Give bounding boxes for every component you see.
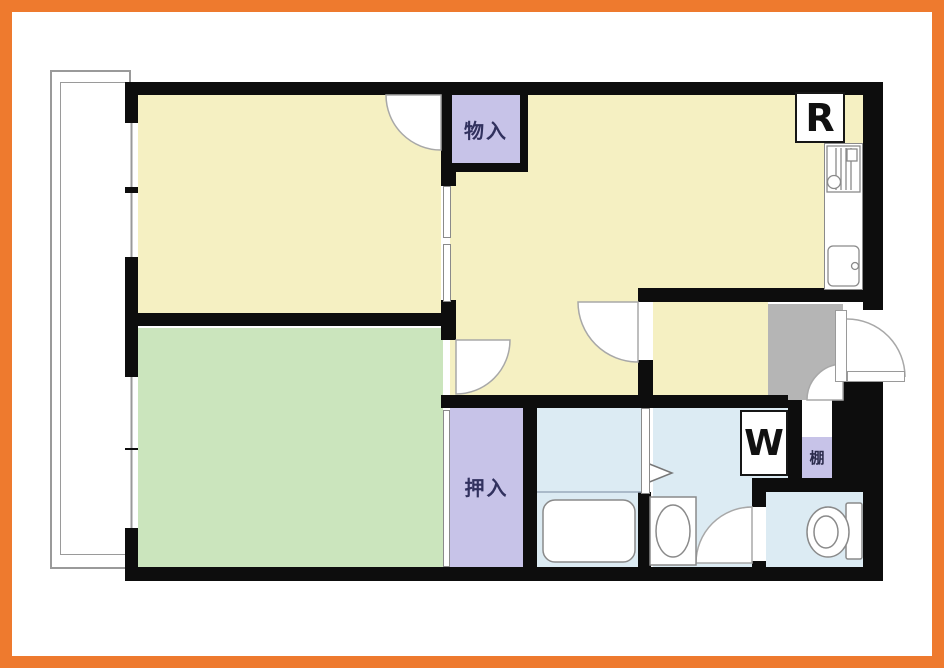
balcony-inner-rail	[60, 82, 129, 555]
wall-toilet-left-upper	[752, 492, 766, 507]
refrigerator-label: R	[805, 96, 834, 140]
washroom	[653, 408, 752, 567]
oshiire-text: 押入	[465, 472, 509, 501]
washing-machine-box: W	[740, 410, 788, 476]
wall-ldk-bottom	[638, 288, 883, 302]
washer-label: W	[744, 423, 784, 464]
refrigerator-box: R	[795, 92, 845, 143]
entrance-door-frame	[835, 310, 847, 382]
wall-bottom	[125, 567, 883, 581]
wall-top	[125, 82, 883, 95]
oshiire-fusuma	[443, 410, 450, 567]
wall-pipe-space	[832, 400, 883, 492]
kitchen-counter	[824, 143, 863, 290]
wall-closet-right	[520, 95, 528, 172]
sliding-partition-lower	[443, 244, 451, 302]
shelf-niche	[802, 400, 832, 437]
shelf-text: 棚	[809, 447, 824, 468]
wall-right-lower	[863, 492, 883, 581]
corridor	[450, 288, 638, 395]
floor-plan: R W	[0, 0, 944, 668]
wall-water-top	[441, 395, 788, 408]
wall-partition-stub	[441, 172, 456, 186]
wall-bath-wash-lower	[638, 492, 651, 567]
wall-closet-bottom	[441, 163, 528, 172]
wall-right-upper	[863, 95, 883, 310]
shelf-label: 棚	[802, 437, 832, 478]
wall-stub-green-upper	[441, 300, 456, 340]
entrance-door-leaf	[847, 371, 905, 382]
wall-toilet-top	[752, 478, 832, 492]
wall-entrance-jog	[843, 382, 883, 400]
bathroom-thin-wall	[641, 408, 650, 494]
storage-closet-label: 物入	[452, 95, 520, 163]
window-upper-2	[125, 193, 138, 257]
room-upper-left	[138, 95, 441, 315]
window-upper-1	[125, 123, 138, 187]
entry-hall	[653, 302, 768, 395]
bathroom	[537, 408, 641, 567]
room-ldk-left-strip	[450, 172, 528, 288]
sliding-partition-upper	[443, 186, 451, 238]
window-lower-2	[125, 450, 138, 528]
genkan	[768, 304, 843, 400]
wall-toilet-left-lower	[752, 561, 766, 567]
wall-closet-left	[441, 95, 452, 172]
wall-oshiire-bath	[523, 408, 537, 567]
toilet-room	[766, 492, 863, 567]
oshiire-label: 押入	[450, 468, 523, 504]
wall-rooms-divider	[125, 313, 456, 326]
room-lower-left-green	[138, 328, 443, 567]
wall-shelf-left	[788, 400, 802, 478]
door-arc-entrance	[847, 319, 905, 377]
window-lower-1	[125, 377, 138, 448]
wall-hall-left	[638, 360, 653, 408]
storage-closet-text: 物入	[464, 115, 508, 144]
